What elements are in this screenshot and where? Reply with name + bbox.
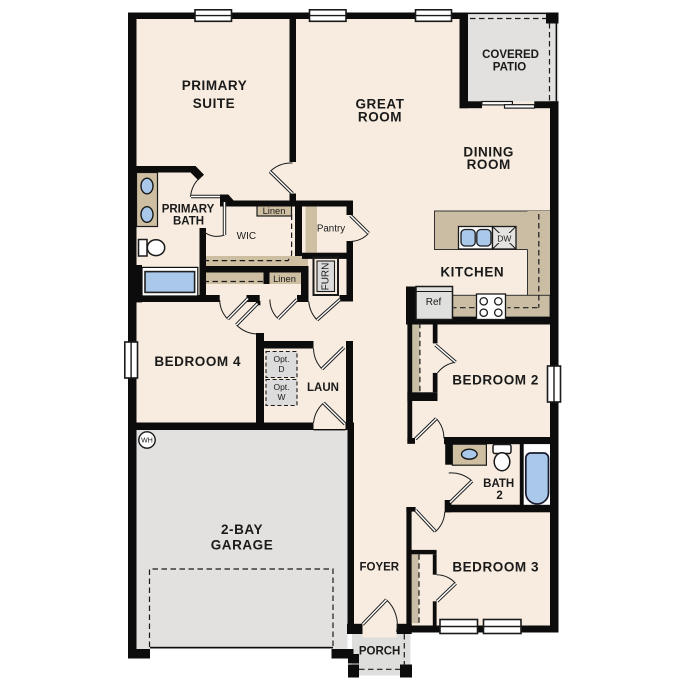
svg-text:FURN: FURN <box>320 263 331 291</box>
svg-text:BEDROOM 2: BEDROOM 2 <box>452 372 539 387</box>
svg-text:WIC: WIC <box>237 231 256 242</box>
svg-text:ROOM: ROOM <box>467 157 511 172</box>
svg-text:GARAGE: GARAGE <box>211 538 274 553</box>
svg-text:BATH: BATH <box>483 478 514 490</box>
svg-text:SUITE: SUITE <box>193 96 236 111</box>
svg-text:Opt.: Opt. <box>273 354 289 364</box>
svg-text:ROOM: ROOM <box>358 110 402 125</box>
svg-text:PRIMARY: PRIMARY <box>162 204 215 216</box>
svg-text:Pantry: Pantry <box>317 224 345 235</box>
svg-text:PATIO: PATIO <box>493 62 526 74</box>
svg-text:Opt.: Opt. <box>273 382 289 392</box>
svg-text:BATH: BATH <box>173 215 204 227</box>
svg-text:FOYER: FOYER <box>359 562 399 574</box>
svg-text:BEDROOM 3: BEDROOM 3 <box>452 560 539 575</box>
svg-text:W: W <box>277 392 285 402</box>
svg-text:Ref: Ref <box>426 297 442 308</box>
svg-text:LAUN: LAUN <box>307 382 339 394</box>
svg-text:Linen: Linen <box>263 206 286 216</box>
svg-text:Linen: Linen <box>273 274 296 284</box>
svg-text:DW: DW <box>497 234 511 244</box>
svg-text:D: D <box>278 364 284 374</box>
svg-text:2-BAY: 2-BAY <box>221 522 263 537</box>
svg-text:PRIMARY: PRIMARY <box>182 78 248 93</box>
svg-text:BEDROOM 4: BEDROOM 4 <box>154 354 241 369</box>
svg-text:PORCH: PORCH <box>359 645 401 657</box>
svg-text:COVERED: COVERED <box>482 49 539 61</box>
svg-text:WH: WH <box>141 438 153 445</box>
svg-text:2: 2 <box>496 490 502 502</box>
svg-text:KITCHEN: KITCHEN <box>440 265 504 280</box>
